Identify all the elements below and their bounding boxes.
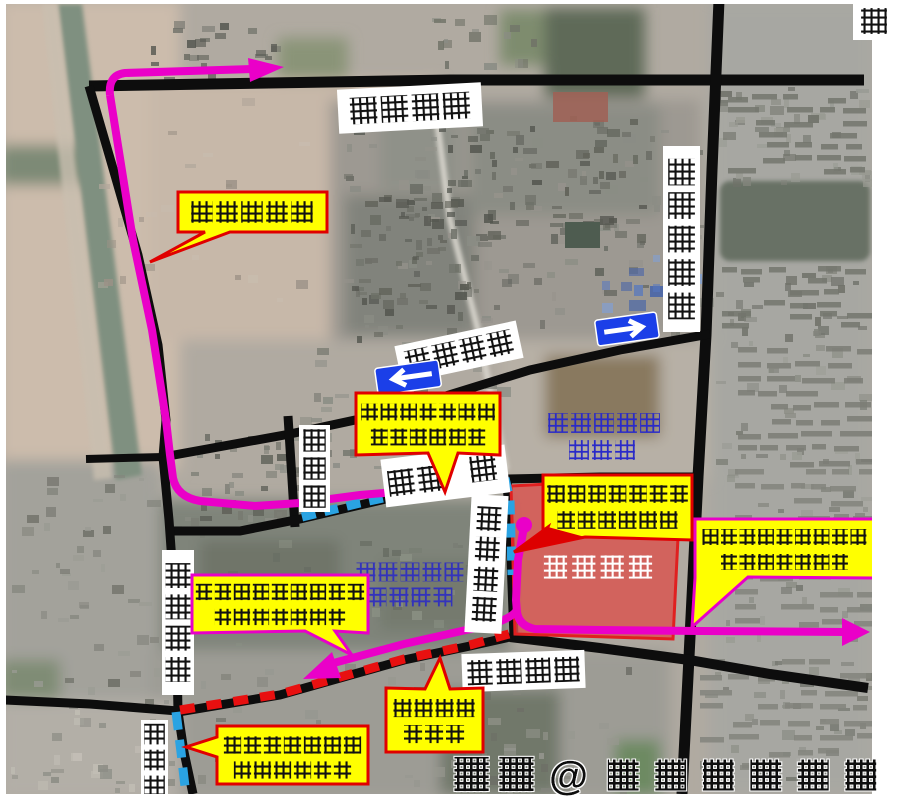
svg-text:@: @ [549,754,588,798]
